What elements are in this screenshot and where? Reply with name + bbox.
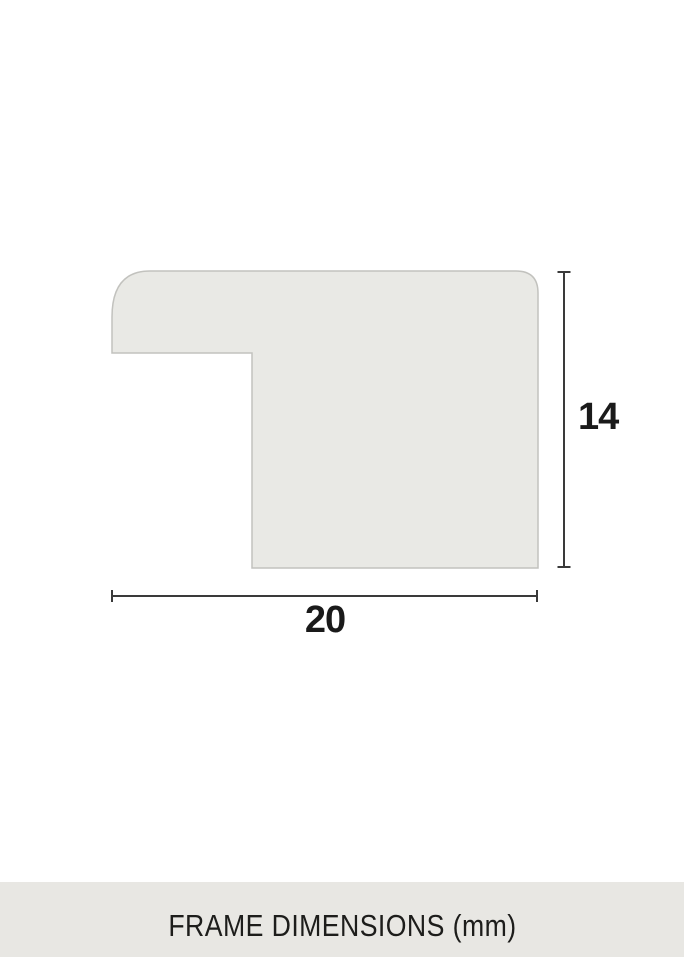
width-dimension-label: 20	[285, 601, 365, 639]
height-dimension-label: 14	[578, 398, 618, 436]
frame-profile-shape	[112, 271, 538, 568]
footer-caption-bar: FRAME DIMENSIONS (mm)	[0, 882, 684, 957]
frame-dimensions-page: 14 20 FRAME DIMENSIONS (mm)	[0, 0, 684, 957]
footer-caption: FRAME DIMENSIONS (mm)	[168, 908, 516, 944]
height-dimension-line	[558, 272, 571, 567]
frame-profile-drawing	[0, 0, 684, 957]
